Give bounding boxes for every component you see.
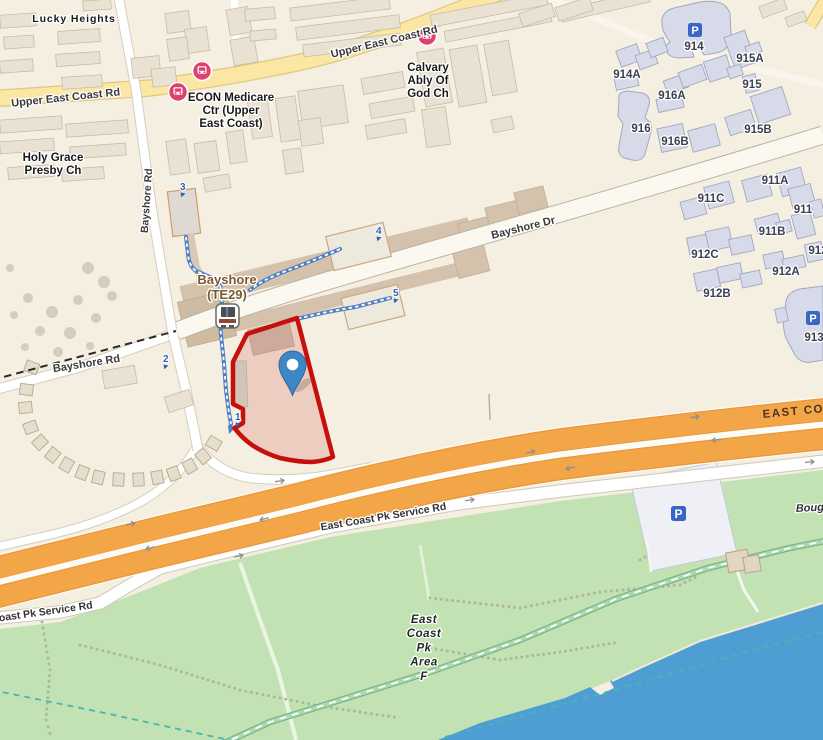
svg-text:Presby Ch: Presby Ch [25,165,82,177]
svg-text:Bayshore: Bayshore [197,272,256,287]
svg-text:911A: 911A [762,175,789,187]
svg-text:Pk: Pk [416,642,431,654]
svg-text:916: 916 [631,123,650,135]
svg-text:P: P [691,25,698,37]
svg-text:Holy Grace: Holy Grace [23,152,84,164]
svg-text:Lucky Heights: Lucky Heights [32,13,115,25]
svg-text:912B: 912B [703,288,731,300]
svg-text:912C: 912C [691,249,719,261]
svg-text:915B: 915B [744,124,772,136]
svg-text:5: 5 [393,288,399,299]
svg-text:914A: 914A [613,69,641,81]
svg-text:1: 1 [235,412,241,423]
svg-text:3: 3 [180,182,186,193]
svg-text:F: F [420,671,428,683]
svg-text:P: P [809,313,816,325]
svg-text:2: 2 [163,354,169,365]
svg-text:East Coast): East Coast) [199,118,262,130]
svg-text:P: P [674,507,682,521]
svg-text:Calvary: Calvary [407,62,449,74]
svg-text:God Ch: God Ch [407,88,449,100]
svg-text:(TE29): (TE29) [207,287,247,302]
svg-text:4: 4 [376,226,382,237]
svg-text:ECON Medicare: ECON Medicare [188,92,274,104]
svg-text:915A: 915A [736,53,764,65]
svg-text:913: 913 [804,332,823,344]
svg-text:912A: 912A [772,266,800,278]
svg-text:911: 911 [794,204,813,216]
svg-text:911B: 911B [759,226,786,238]
svg-text:Ably Of: Ably Of [408,75,449,87]
svg-text:Ctr (Upper: Ctr (Upper [203,105,260,117]
svg-text:East: East [411,614,438,626]
svg-text:912: 912 [808,245,823,257]
svg-text:916A: 916A [658,90,686,102]
svg-text:Area: Area [409,657,438,669]
svg-text:914: 914 [684,41,704,53]
svg-text:915: 915 [742,79,762,91]
svg-text:Coast: Coast [407,628,442,640]
svg-text:911C: 911C [698,193,725,205]
svg-text:916B: 916B [661,136,689,148]
